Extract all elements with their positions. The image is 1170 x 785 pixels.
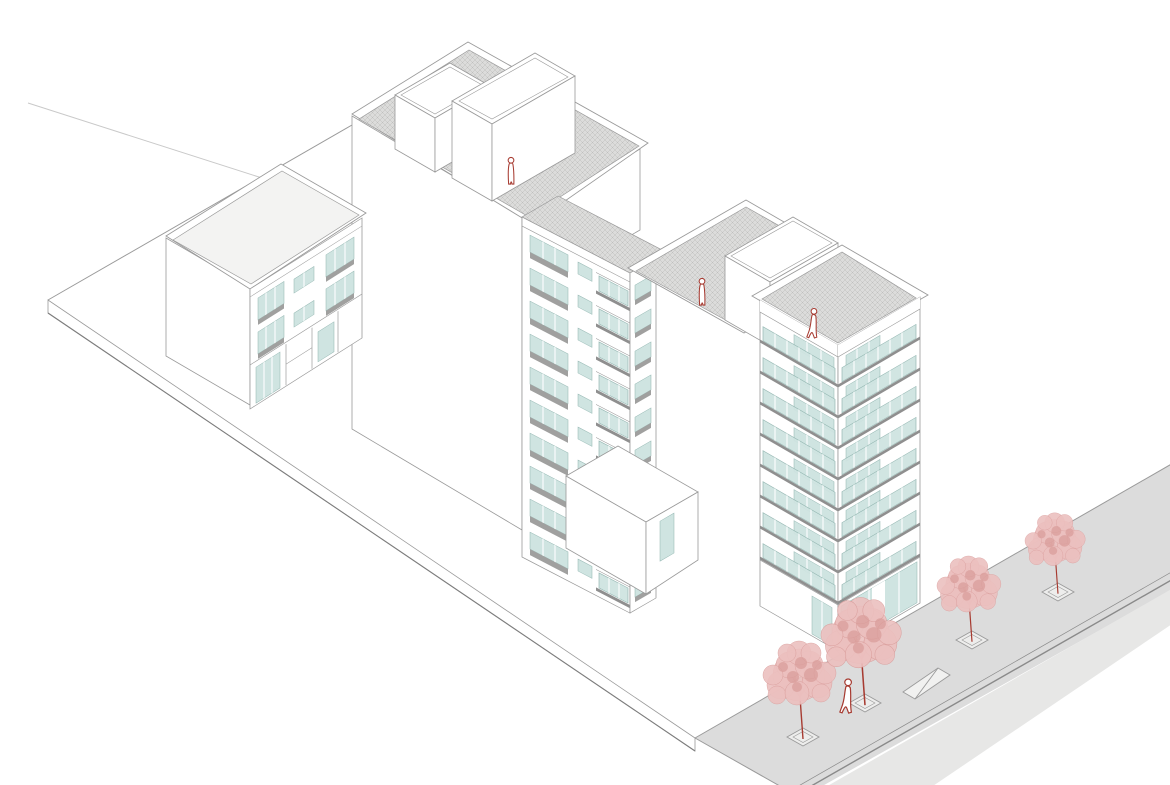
axonometric-drawing-canvas (0, 0, 1170, 785)
corner-tower (752, 245, 928, 651)
figure-terrace-roof (699, 278, 705, 305)
courtyard-door (660, 513, 674, 561)
corner-tower-se-facade (838, 297, 920, 651)
axonometric-drawing (0, 0, 1170, 785)
corner-tower-sw-facade (760, 300, 838, 651)
figure-slab-roof (508, 157, 514, 184)
